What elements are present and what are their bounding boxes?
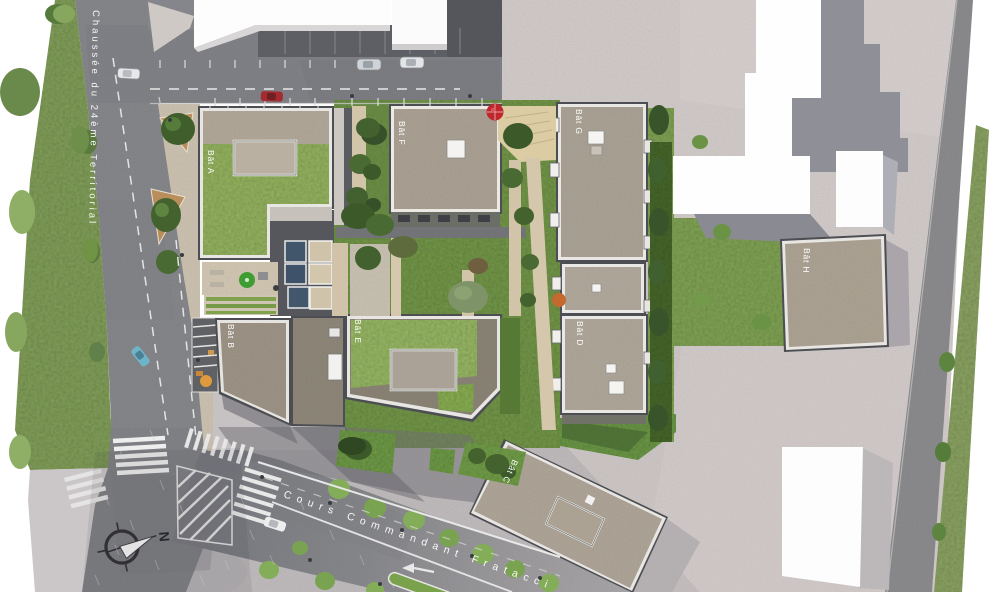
svg-text:Bât F: Bât F [397, 121, 407, 145]
svg-text:Bât H: Bât H [801, 248, 812, 274]
svg-text:Bât G: Bât G [574, 109, 584, 135]
svg-text:Bât D: Bât D [575, 321, 585, 346]
svg-text:Bât B: Bât B [226, 324, 236, 349]
svg-text:Bât A: Bât A [206, 150, 216, 174]
svg-text:Bât E: Bât E [353, 319, 363, 344]
